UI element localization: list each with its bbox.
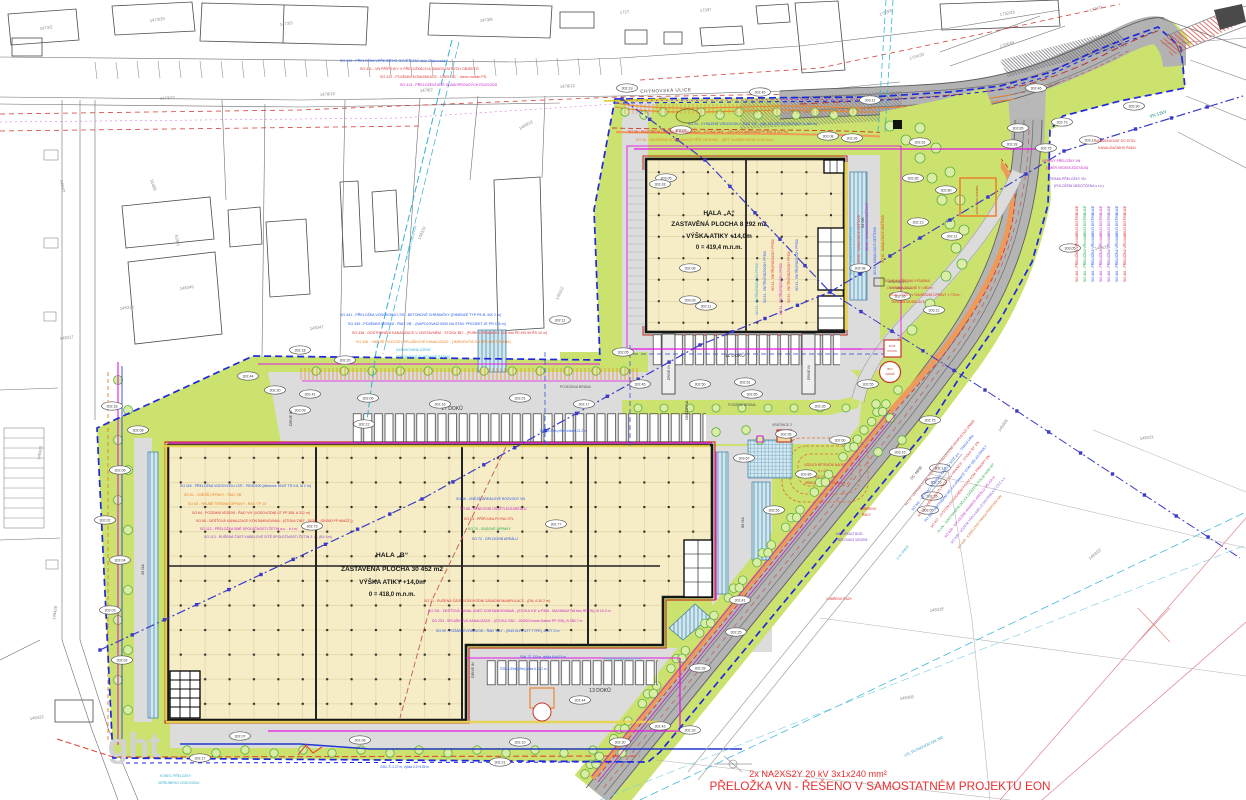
svg-text:302.30: 302.30 [615,740,626,744]
svg-text:PŘELOŽKA VN - ŘEŠENO V SAMOSTA: PŘELOŽKA VN - ŘEŠENO V SAMOSTATNÉM PROJE… [709,779,1050,793]
svg-text:30-05: 30-05 [889,344,896,348]
svg-text:303.15: 303.15 [895,450,906,454]
svg-text:303.12: 303.12 [1085,138,1096,142]
svg-text:302.11: 302.11 [947,234,958,238]
svg-text:(POLOŽENÍ NEDOTČENA s.r.o.): (POLOŽENÍ NEDOTČENA s.r.o.) [1054,183,1104,188]
svg-text:1478/2: 1478/2 [420,87,434,93]
svg-text:302.85: 302.85 [801,472,812,476]
svg-text:302.03: 302.03 [105,608,116,612]
svg-text:ČSN A 33m (x9m) šířka 6.21.2 m: ČSN A 33m (x9m) šířka 6.21.2 m [540,428,587,433]
svg-text:SO 411 - VN PŘÍPOJKY V PŘELOŽK: SO 411 - VN PŘÍPOJKY V PŘELOŽKÁCH A SAMO… [360,66,479,71]
svg-text:SO 68 - VENKOVNÍ OSVĚTLENÍ ARE: SO 68 - VENKOVNÍ OSVĚTLENÍ AREÁLU [460,506,527,511]
svg-text:SO 30 - KANALIZACE DEŠŤOVÁ: SO 30 - KANALIZACE DEŠŤOVÁ [848,226,853,275]
svg-text:ODRŽOVNA: ODRŽOVNA [684,400,689,420]
svg-text:302.80: 302.80 [941,188,952,192]
svg-text:302.41: 302.41 [735,598,746,602]
svg-text:TRASA PŘELOŽKY VN: TRASA PŘELOŽKY VN [1050,176,1086,181]
svg-text:(SMĚR VEDENÍ ZŮSTÁVÁ): (SMĚR VEDENÍ ZŮSTÁVÁ) [1046,165,1088,170]
svg-text:CSN, Š. 2.27 m, výška 0.2+4.05: CSN, Š. 2.27 m, výška 0.2+4.05 m [380,764,429,769]
svg-text:302.08: 302.08 [133,428,144,432]
svg-text:SO 441 - PŘELOŽKA VŘN KABELŮ D: SO 441 - PŘELOŽKA VŘN KABELŮ DISTRIBUCE [1098,205,1103,282]
svg-text:SO 441 - PŘELOŽKA VŘN KABELŮ D: SO 441 - PŘELOŽKA VŘN KABELŮ DISTRIBUCE [1122,205,1127,282]
svg-text:ŘADY: ŘADY [862,512,872,517]
svg-text:PRODLOUŽENÍ DOTYK: PRODLOUŽENÍ DOTYK [604,656,642,661]
svg-text:SO 65 - DEŠŤOVÁ KANALIZACE KON: SO 65 - DEŠŤOVÁ KANALIZACE KONTAMINOVANÁ… [196,518,353,523]
svg-text:SO 112 - PŘELOŽKA SMĚ SPOLEČNO: SO 112 - PŘELOŽKA SMĚ SPOLEČNOSTI ČETIN … [200,526,298,531]
svg-text:302.98: 302.98 [855,266,866,270]
svg-text:302.85: 302.85 [908,176,919,180]
svg-text:SO 441 - PŘELOŽKA VŘN KABELŮ D: SO 441 - PŘELOŽKA VŘN KABELŮ DISTRIBUCE [1074,205,1079,282]
svg-text:302.30: 302.30 [270,388,281,392]
svg-text:302.08: 302.08 [685,266,696,270]
svg-text:302.02: 302.02 [117,658,128,662]
svg-text:302.73: 302.73 [1057,120,1068,124]
svg-text:1727: 1727 [620,9,630,15]
svg-text:302.33: 302.33 [685,728,696,732]
svg-text:SNK, Š. 120 m, výška 6.6x3.5 m: SNK, Š. 120 m, výška 6.6x3.5 m [520,654,566,659]
svg-text:BIO: BIO [887,367,893,371]
svg-text:302.12: 302.12 [359,422,370,426]
svg-text:302.45: 302.45 [755,90,766,94]
svg-text:302.10: 302.10 [515,740,526,744]
svg-text:302.41: 302.41 [305,392,316,396]
svg-text:ZASTAVĚNÁ PLOCHA 8 292 m2: ZASTAVĚNÁ PLOCHA 8 292 m2 [671,219,767,228]
svg-text:302.50: 302.50 [695,382,706,386]
svg-text:BĚLOVACÍ VEDENÍ: BĚLOVACÍ VEDENÍ [838,537,868,542]
svg-text:SO 31 - VNITŘNÍ ROZVODY PP300: SO 31 - VNITŘNÍ ROZVODY PP300 [786,251,791,303]
svg-text:ZASAHOVANÁ ÚZEMÍ: ZASAHOVANÁ ÚZEMÍ [396,347,430,352]
svg-text:SO 203 - SPLAŠKOVÁ KANALIZACE: SO 203 - SPLAŠKOVÁ KANALIZACE - (STOKA '… [432,618,582,623]
svg-text:302.95: 302.95 [781,432,792,436]
svg-text:302.60: 302.60 [835,438,846,442]
svg-text:302.06: 302.06 [115,468,126,472]
svg-text:SO 410 - PŘELOŽKA VEŘEJNÉHO OS: SO 410 - PŘELOŽKA VEŘEJNÉHO OSVĚTLENÍ ul… [340,58,446,63]
svg-text:303.18: 303.18 [655,182,666,186]
svg-text:VEŘEJNÉHO VODOVODU: VEŘEJNÉHO VODOVODU [158,780,200,785]
svg-text:SO 61 - VNĚJŠÍ ÚPRAVY - ŘAD 'V: SO 61 - VNĚJŠÍ ÚPRAVY - ŘAD 'VB' [184,492,242,497]
svg-text:302.85: 302.85 [1013,126,1024,130]
svg-text:SO 30 - KANALIZACE DEŠŤOVÁ: SO 30 - KANALIZACE DEŠŤOVÁ [880,214,885,263]
svg-text:0 = 419,4 m.n.m.: 0 = 419,4 m.n.m. [696,245,743,251]
svg-text:SO 31 - VNITŘNÍ ROZVODY PP300: SO 31 - VNITŘNÍ ROZVODY PP300 [762,251,767,303]
svg-text:302.44: 302.44 [575,698,586,702]
svg-text:SO 71 - RUŠENÁ ČÁST VODOVODNÍ: SO 71 - RUŠENÁ ČÁST VODOVODNÍ ZÁSADNÍ MA… [424,598,550,603]
svg-text:SO 31 - VNITŘNÍ ROZVODY PP300: SO 31 - VNITŘNÍ ROZVODY PP300 [770,239,775,291]
svg-text:SO 441 - PŘELOŽKA VŘN KABELŮ D: SO 441 - PŘELOŽKA VŘN KABELŮ DISTRIBUCE [1090,205,1095,282]
svg-text:302.19: 302.19 [622,86,633,90]
svg-text:302.55: 302.55 [863,382,874,386]
svg-text:NAVLÉKACÍ BOD -: NAVLÉKACÍ BOD - [836,531,864,536]
svg-text:SO 436 - VNĚJŠÍ ROZVODY SPLAŠK: SO 436 - VNĚJŠÍ ROZVODY SPLAŠKOVÉ KANALI… [356,339,511,344]
svg-text:302.25: 302.25 [731,630,742,634]
svg-text:ČSN A 33m (x9m) šířka 6.21.2 m: ČSN A 33m (x9m) šířka 6.21.2 m [500,666,547,671]
svg-text:CELK. VÝČET V+ZAHRADNÍ ÚPRAVY: CELK. VÝČET V+ZAHRADNÍ ÚPRAVY 1 775 m² [889,292,961,297]
svg-text:303.12: 303.12 [929,308,940,312]
svg-text:SO 31 - VNITŘNÍ ROZVODY PP300: SO 31 - VNITŘNÍ ROZVODY PP300 [754,263,759,315]
svg-text:302.35: 302.35 [815,404,826,408]
svg-text:KONEC PŘELOŽKY: KONEC PŘELOŽKY [160,773,192,778]
svg-text:ght: ght [108,727,161,765]
svg-text:302.18: 302.18 [107,404,118,408]
svg-text:SO 69 - PŘÍPOJKA PLYNU STL: SO 69 - PŘÍPOJKA PLYNU STL [464,516,514,521]
svg-text:KANALIZAČNÍHO ŘADU: KANALIZAČNÍHO ŘADU [1098,145,1136,150]
svg-text:302.20: 302.20 [340,358,351,362]
svg-text:302.21: 302.21 [495,760,506,764]
svg-text:SO 113 - RUŠENÁ ČÁST KABELOVÉ: SO 113 - RUŠENÁ ČÁST KABELOVÉ SÍTĚ SPOLE… [204,534,332,539]
svg-text:49 OA: 49 OA [141,564,145,575]
svg-text:302.44: 302.44 [243,374,254,378]
svg-text:53 OK: 53 OK [861,217,865,228]
svg-text:NEZASAHOVAT DO STÁV.: NEZASAHOVAT DO STÁV. [1095,139,1136,143]
svg-text:DRIVE IN: DRIVE IN [471,662,475,678]
svg-text:DRIVE IN: DRIVE IN [667,365,671,380]
svg-text:2x NA2XS2Y 20 kV 3x1x240 mm²: 2x NA2XS2Y 20 kV 3x1x240 mm² [749,769,887,779]
svg-text:302.45: 302.45 [635,382,646,386]
svg-text:SO 441 - PŘELOŽKA VŘN KABELŮ D: SO 441 - PŘELOŽKA VŘN KABELŮ DISTRIBUCE [1114,205,1119,282]
svg-text:303.67: 303.67 [739,456,750,460]
svg-text:POJEZDNÁ BRÁNA: POJEZDNÁ BRÁNA [560,385,591,389]
svg-text:TERÉNNÍ MODELACE: TERÉNNÍ MODELACE [891,299,926,304]
svg-text:SO 64 - POZEMNÍ VEDENÍ - ŘAD ': SO 64 - POZEMNÍ VEDENÍ - ŘAD 'VH' (VODOV… [192,510,310,515]
svg-text:302.51: 302.51 [740,380,751,384]
svg-text:302.77: 302.77 [551,522,562,526]
svg-text:302.11: 302.11 [555,318,566,322]
svg-text:UMBŘENO: UMBŘENO [860,506,877,511]
svg-text:SO.08 A VEŘEJNÁ VÝSADBA: SO.08 A VEŘEJNÁ VÝSADBA [885,278,931,283]
svg-text:OCHRANA ZELENĚ V r.450 m²: OCHRANA ZELENĚ V r.450 m² [887,285,934,290]
svg-text:50 OA: 50 OA [741,517,745,528]
svg-text:SO 412 - POZEMNÍ KOMUNIKACE -: SO 412 - POZEMNÍ KOMUNIKACE - ÚSEK 'B1' … [380,74,487,79]
svg-text:302.06: 302.06 [363,396,374,400]
svg-text:302.62: 302.62 [915,140,926,144]
svg-text:302.26: 302.26 [847,136,858,140]
svg-text:302.55: 302.55 [769,508,780,512]
svg-text:302.75: 302.75 [1041,146,1052,150]
svg-text:302.18: 302.18 [295,348,306,352]
svg-text:SO 413 - PŘELOŽENÍ SÍTĚ SLABOP: SO 413 - PŘELOŽENÍ SÍTĚ SLABOPROUDÝCH RO… [400,82,498,87]
svg-text:302.28: 302.28 [695,666,706,670]
svg-text:302.01: 302.01 [515,396,526,400]
svg-text:SO 441 - PŘELOŽKA VŘN KABELŮ D: SO 441 - PŘELOŽKA VŘN KABELŮ DISTRIBUCE [1106,205,1111,282]
svg-text:11 DOKŮ: 11 DOKŮ [725,352,744,358]
svg-text:302.46: 302.46 [1031,86,1042,90]
svg-text:303.09: 303.09 [685,298,696,302]
svg-text:302.09: 302.09 [295,408,306,412]
svg-text:302.07: 302.07 [235,734,246,738]
svg-text:SO 441 - PŘELOŽKA VŘN KABELŮ D: SO 441 - PŘELOŽKA VŘN KABELŮ DISTRIBUCE [1082,205,1087,282]
svg-text:SO 441 - PŘELOŽKA VODOVODU LT/: SO 441 - PŘELOŽKA VODOVODU LT/E - BETONO… [340,312,501,317]
svg-text:SO 439 - POZEMNÍ VEDENÍ - ŘAD: SO 439 - POZEMNÍ VEDENÍ - ŘAD 'VB' - (NA… [348,321,506,326]
svg-text:SO 99 - POŽÁRNÍ VODOVOD - ŘAD: SO 99 - POŽÁRNÍ VODOVOD - ŘAD 'VB1' - (S… [436,628,560,633]
svg-text:SO 04 - VYSAZENÍ VODOVODU - ŘA: SO 04 - VYSAZENÍ VODOVODU - ŘAD 'VB' - (… [688,121,817,126]
svg-text:SO 72 - OPLOCENÍ AREÁLU: SO 72 - OPLOCENÍ AREÁLU [472,537,518,541]
svg-text:302.08: 302.08 [823,134,834,138]
svg-text:302.11: 302.11 [701,304,712,308]
svg-text:SO 201 - DEŠŤOVÁ KANAL.ZNEČ KO: SO 201 - DEŠŤOVÁ KANAL.ZNEČ KONTAMINOVAN… [428,608,611,613]
svg-text:SO 66 - VNĚJŠÍ AREÁLOVÉ ROZVOD: SO 66 - VNĚJŠÍ AREÁLOVÉ ROZVODY VN [456,496,525,501]
svg-text:ZASTAVĚNÁ PLOCHA 30 452 m2: ZASTAVĚNÁ PLOCHA 30 452 m2 [341,564,443,573]
svg-text:SO 05 - ROZŠÍŘENÍ DEŠŤOVÉ KANA: SO 05 - ROZŠÍŘENÍ DEŠŤOVÉ KANALIZACE - S… [628,129,788,134]
svg-text:VÝŠKA ATIKY +14,0m: VÝŠKA ATIKY +14,0m [359,577,425,586]
svg-text:VRÁTNICE 2: VRÁTNICE 2 [772,423,792,427]
svg-text:302.17: 302.17 [195,756,206,760]
svg-text:302.05: 302.05 [618,350,629,354]
svg-text:302.02: 302.02 [100,518,111,522]
svg-text:13 DOKŮ: 13 DOKŮ [589,687,611,694]
svg-text:302.04: 302.04 [115,558,126,562]
svg-text:VZDUTÁ RETENČNÍ NÁDRŽ: VZDUTÁ RETENČNÍ NÁDRŽ [804,462,846,467]
svg-text:POŽÁRNÍ BRÁNA: POŽÁRNÍ BRÁNA [728,402,756,407]
svg-text:HALA „A“: HALA „A“ [703,210,734,217]
svg-text:ÚPRAVY PŘELOŽKY VN: ÚPRAVY PŘELOŽKY VN [1042,158,1081,163]
svg-text:SO 06 - NAVRŽENÁ KOMUNIKACE PĚ: SO 06 - NAVRŽENÁ KOMUNIKACE PĚŠÍ CHODNÍK… [636,137,773,142]
svg-text:DRIVE IN: DRIVE IN [807,365,811,380]
svg-text:302.90: 302.90 [1129,104,1140,108]
svg-text:VÝŠKA ATIKY +14,0m: VÝŠKA ATIKY +14,0m [686,231,752,240]
svg-text:VODOVODNÍ OCHRANNÉ PÁSMO: VODOVODNÍ OCHRANNÉ PÁSMO [396,354,451,359]
svg-text:HALA „B“: HALA „B“ [376,552,408,559]
svg-text:DRIVE IN: DRIVE IN [289,410,293,426]
svg-text:302.13: 302.13 [913,220,924,224]
svg-text:303.11: 303.11 [865,98,876,102]
svg-text:SO 63 - HRUBÉ TERÉNNÍ ÚPRAVY -: SO 63 - HRUBÉ TERÉNNÍ ÚPRAVY - ŘAD 'TP 1… [188,501,267,506]
svg-text:SO 31 - VNITŘNÍ ROZVODY PP300: SO 31 - VNITŘNÍ ROZVODY PP300 [778,263,783,315]
svg-text:302.08: 302.08 [355,738,366,742]
svg-text:SO 30 - KANALIZACE DEŠŤOVÁ: SO 30 - KANALIZACE DEŠŤOVÁ [872,226,877,275]
svg-text:302.42: 302.42 [655,724,666,728]
svg-text:302.28: 302.28 [1007,142,1018,146]
svg-text:NÁDRŽ SPLAVENIN: NÁDRŽ SPLAVENIN [974,186,979,215]
svg-text:302.17: 302.17 [579,402,590,406]
svg-text:302.65: 302.65 [747,392,758,396]
svg-text:303.05: 303.05 [1065,246,1076,250]
svg-text:302.16: 302.16 [435,402,446,406]
svg-text:SO 115 - PŘELOŽKA VODOVODU LT/: SO 115 - PŘELOŽKA VODOVODU LT/E - PEHD10… [180,483,311,488]
svg-text:302.73: 302.73 [307,524,318,528]
svg-text:OTM.DN: OTM.DN [887,350,897,353]
svg-text:SO 70 - SADOVÉ ÚPRAVY: SO 70 - SADOVÉ ÚPRAVY [468,526,511,531]
svg-text:SO 31 - VNITŘNÍ ROZVODY PP300: SO 31 - VNITŘNÍ ROZVODY PP300 [794,239,799,291]
svg-text:SO 438 - ODSTRANĚNÍ KANALIZACE: SO 438 - ODSTRANĚNÍ KANALIZACE V ODSTAVN… [352,330,547,335]
svg-text:0 = 418,0 m.n.m.: 0 = 418,0 m.n.m. [369,592,416,598]
svg-text:302.75: 302.75 [925,418,936,422]
